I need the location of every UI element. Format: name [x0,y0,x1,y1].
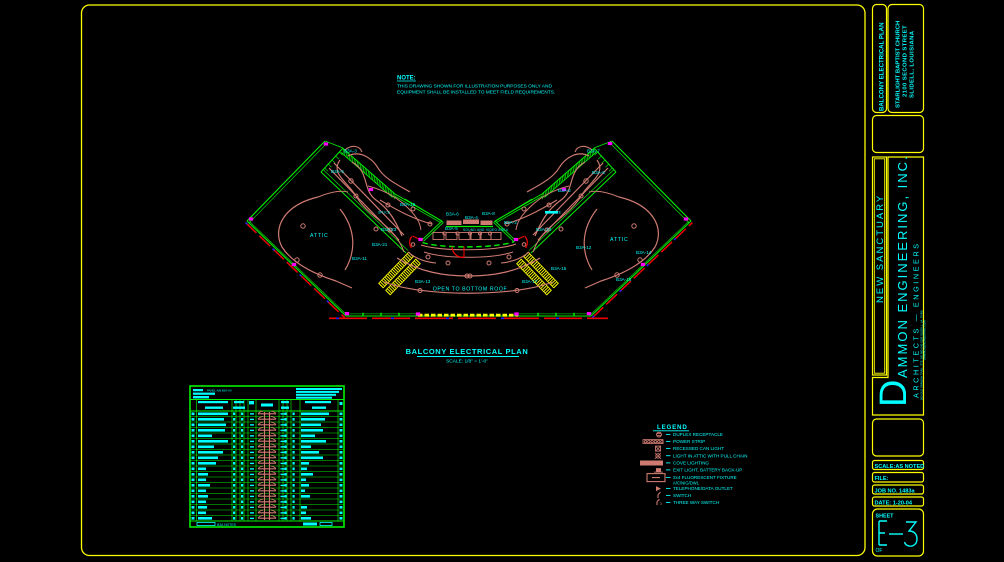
svg-text:B3A-6: B3A-6 [446,212,459,217]
svg-text:BALCONY ELECTRICAL PLAN: BALCONY ELECTRICAL PLAN [879,23,886,111]
svg-text:EXIT LIGHT, BATTERY BACK-UP: EXIT LIGHT, BATTERY BACK-UP [673,468,742,473]
svg-text:3: 3 [660,502,662,506]
svg-text:B3A-8: B3A-8 [482,211,495,216]
svg-text:NEW SANCTUARY: NEW SANCTUARY [875,194,886,303]
svg-text:THREE WAY SWITCH: THREE WAY SWITCH [673,500,719,505]
svg-text:B3A-13: B3A-13 [415,279,431,284]
svg-text:B3A-5: B3A-5 [331,169,344,174]
svg-text:SCALE: 1/8" = 1'-0": SCALE: 1/8" = 1'-0" [446,359,488,365]
svg-text:RECESSED CAN LIGHT: RECESSED CAN LIGHT [673,446,724,451]
svg-text:SLIDELL, LOUISIANA: SLIDELL, LOUISIANA [910,30,916,98]
svg-text:TELEPHONE/DATA OUTLET: TELEPHONE/DATA OUTLET [673,486,733,491]
svg-text:POWER STRIP: POWER STRIP [673,439,705,444]
svg-text:LEGEND: LEGEND [657,424,688,431]
svg-text:B3A-4: B3A-4 [465,215,478,220]
svg-text:DAMMONENGINEERING.COM: DAMMONENGINEERING.COM [923,320,927,360]
svg-text:B3A-17: B3A-17 [522,279,538,284]
svg-text:SHEET: SHEET [876,514,895,520]
svg-text:LIGHT IN ATTIC WITH PULL CHAIN: LIGHT IN ATTIC WITH PULL CHAIN [673,453,747,458]
svg-text:AMMON ENGINEERING, INC.: AMMON ENGINEERING, INC. [895,154,910,378]
svg-text:2x4 FLUORESCENT FIXTURE: 2x4 FLUORESCENT FIXTURE [673,475,737,480]
svg-text:JOB NO. 1483a: JOB NO. 1483a [875,488,916,494]
svg-text:SPLICE: SPLICE [378,211,391,215]
svg-text:EQUIPMENT SHALL BE INSTALLED T: EQUIPMENT SHALL BE INSTALLED TO MEET FIE… [397,89,555,95]
svg-text:DATE: 1-20-04: DATE: 1-20-04 [875,500,913,506]
svg-text:B3A-2: B3A-2 [558,188,571,193]
svg-text:SOUND AND VIDEO AREA: SOUND AND VIDEO AREA [463,228,509,232]
svg-text:B3A-3: B3A-3 [344,149,357,154]
svg-text:FILE:: FILE: [875,476,889,482]
svg-text:B3A-15: B3A-15 [551,266,567,271]
svg-text:B3A NOTES: B3A NOTES [217,523,237,527]
svg-text:B3A-9: B3A-9 [592,170,605,175]
svg-text:A/C/NIG/DWL: A/C/NIG/DWL [673,480,700,485]
svg-text:OF: OF [876,548,883,554]
svg-text:SCALE:AS NOTED: SCALE:AS NOTED [875,464,925,470]
svg-text:B3A-23: B3A-23 [381,227,397,232]
svg-text:B3A-2: B3A-2 [504,220,517,225]
svg-text:B3A-21: B3A-21 [372,242,388,247]
svg-text:STARLIGHT BAPTIST CHURCH: STARLIGHT BAPTIST CHURCH [896,21,902,108]
svg-text:B3A-24: B3A-24 [536,227,552,232]
svg-text:B3A-12: B3A-12 [576,245,592,250]
svg-text:D: D [873,380,915,407]
svg-text:OPEN TO BOTTOM ROOF: OPEN TO BOTTOM ROOF [433,287,508,293]
svg-text:PANEL A/B B3A-XX: PANEL A/B B3A-XX [207,388,232,392]
svg-text:ATTIC: ATTIC [610,237,629,243]
svg-text:THIS DRAWING SHOWN FOR ILLUSTR: THIS DRAWING SHOWN FOR ILLUSTRATION PURP… [397,84,552,90]
svg-text:B3A-19: B3A-19 [400,202,416,207]
svg-text:B3A-11: B3A-11 [352,256,367,261]
svg-text:B3A-14: B3A-14 [636,250,652,255]
svg-text:SWITCH: SWITCH [673,493,691,498]
svg-text:2100 SECOND STREET: 2100 SECOND STREET [903,25,909,97]
svg-text:B3A-7: B3A-7 [587,149,600,154]
svg-text:DUPLEX RECEPTACLE: DUPLEX RECEPTACLE [673,432,723,437]
svg-text:ATTIC: ATTIC [310,233,329,239]
svg-text:BALCONY ELECTRICAL PLAN: BALCONY ELECTRICAL PLAN [406,347,529,356]
svg-text:B3A-16: B3A-16 [616,277,632,282]
svg-text:COVE LIGHTING: COVE LIGHTING [673,461,709,466]
svg-text:B3A-5: B3A-5 [445,226,458,231]
